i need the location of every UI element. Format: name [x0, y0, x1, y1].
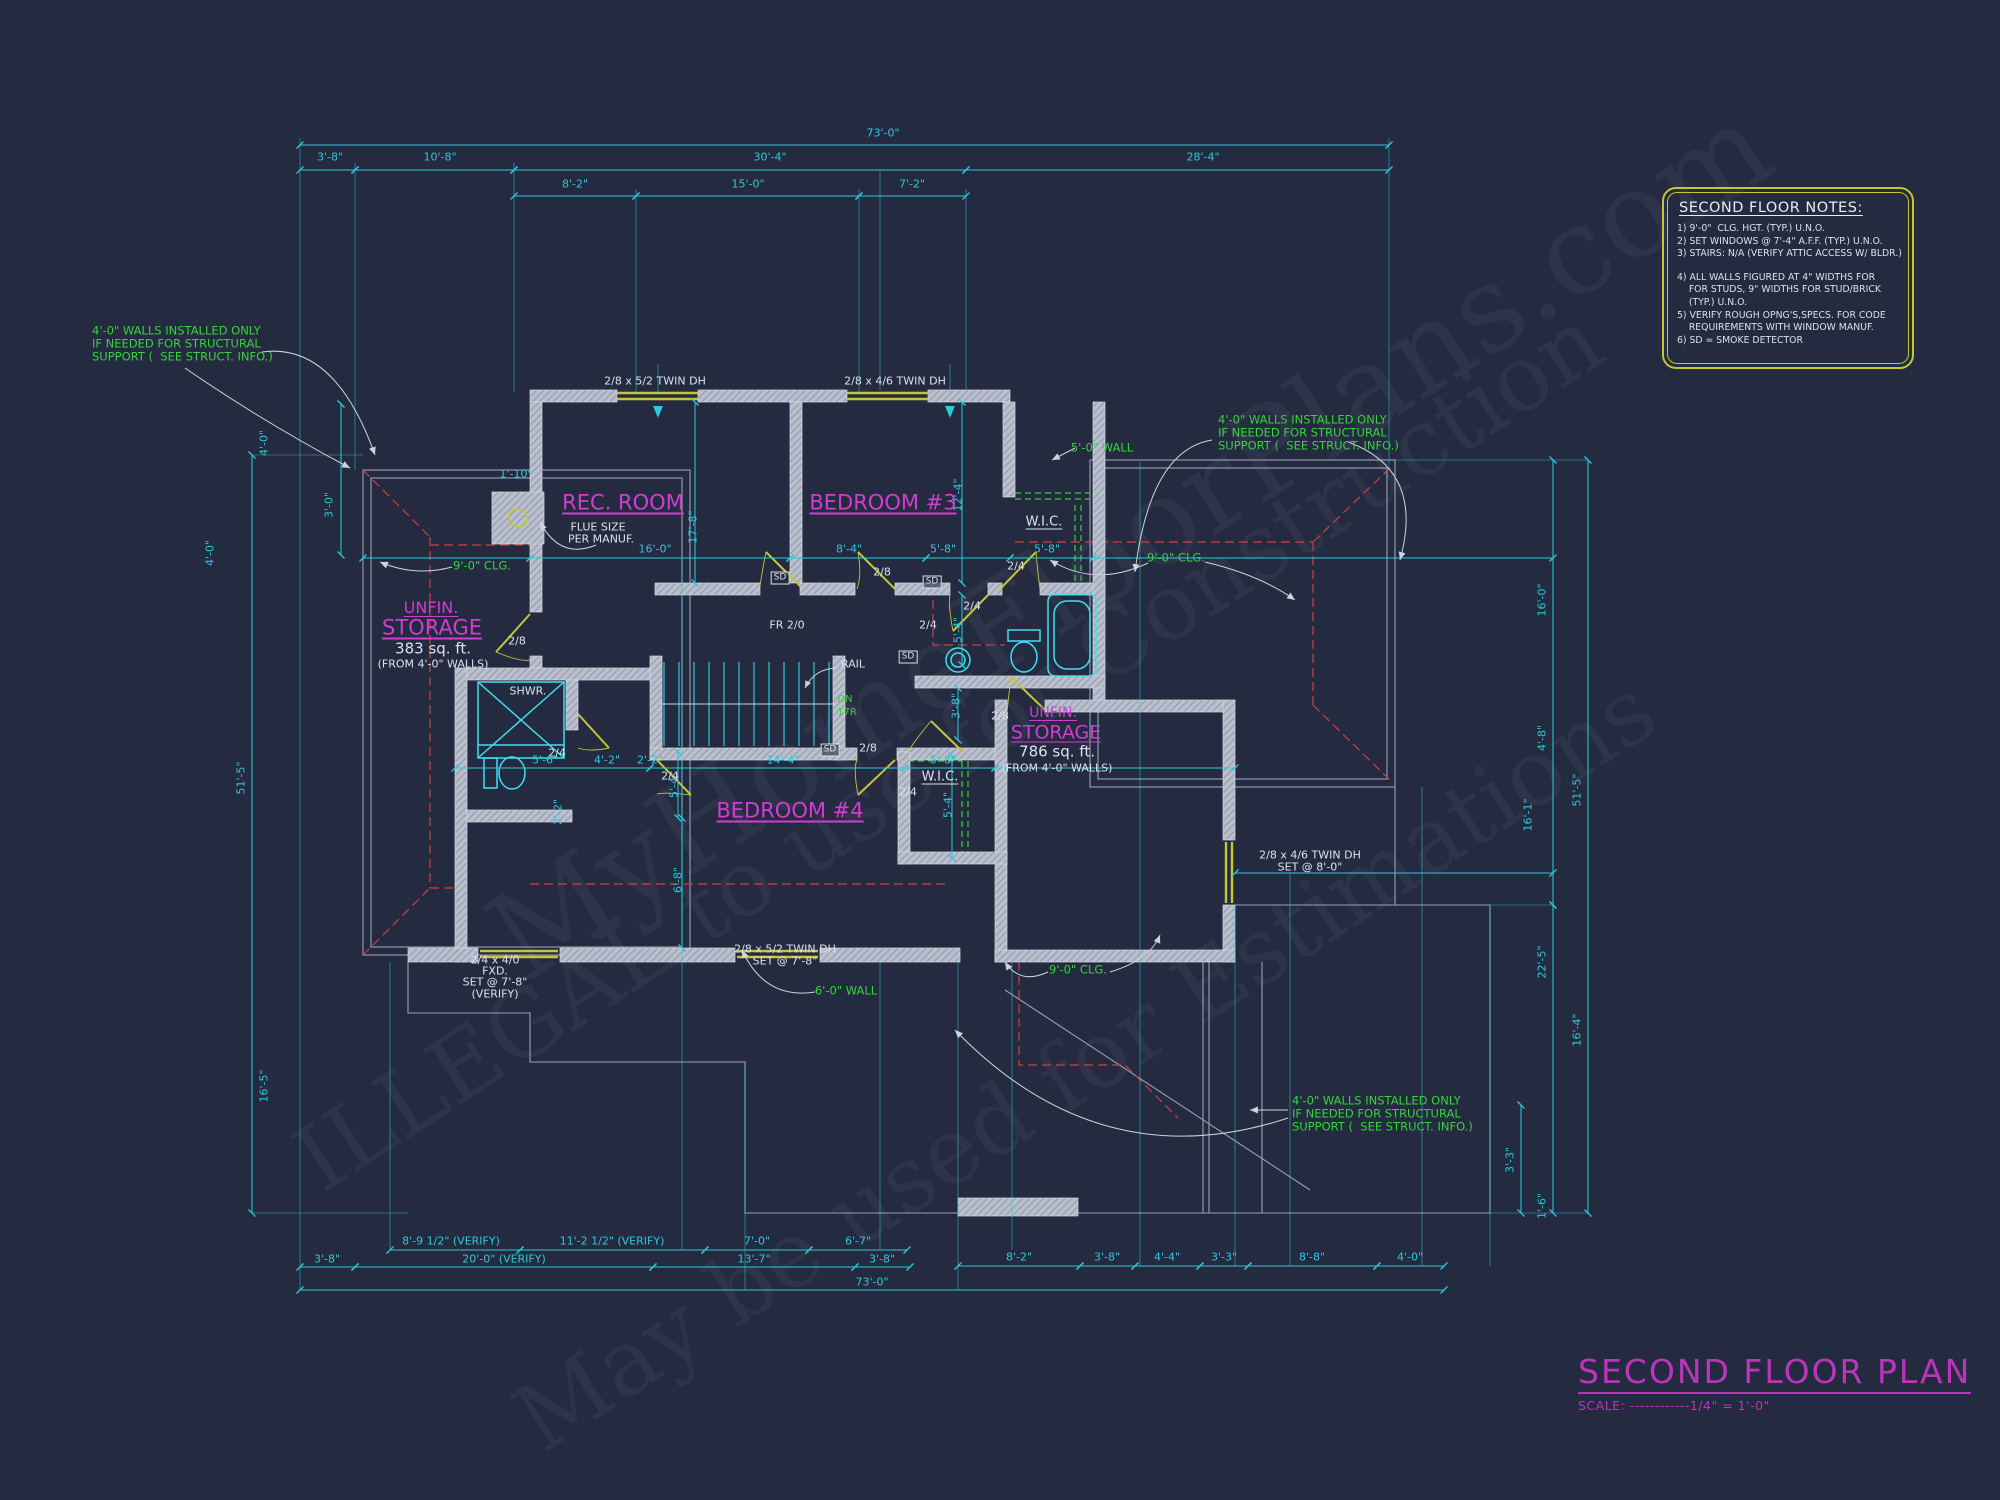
fixture-label-shower: SHWR. — [510, 686, 547, 697]
window-spec: (VERIFY) — [472, 989, 519, 1000]
structural-note: 4'-0" WALLS INSTALLED ONLY — [1292, 1095, 1461, 1107]
dim-label: 30'-4" — [753, 152, 786, 163]
flue-note: FLUE SIZE — [570, 522, 625, 533]
door-size: 2/4 — [919, 620, 937, 631]
dim-label: 4'-2" — [594, 755, 620, 766]
stair-direction: DN — [837, 695, 852, 705]
ceiling-note: 9'-0" CLG. — [1147, 552, 1205, 564]
dim-label: 22'-5" — [1537, 945, 1548, 978]
door-size: 2/4 — [899, 787, 917, 798]
note-line: 4) ALL WALLS FIGURED AT 4" WIDTHS FOR — [1677, 272, 1899, 285]
dim-label: 5'-4" — [943, 792, 954, 818]
dim-label: 16'-4" — [1572, 1013, 1583, 1046]
dim-label: 8'-4" — [836, 544, 862, 555]
dim-label: 7'-0" — [744, 1236, 770, 1247]
note-line: 1) 9'-0" CLG. HGT. (TYP.) U.N.O. — [1677, 223, 1899, 236]
dim-label: 5'-8" — [930, 544, 956, 555]
window-arrows — [653, 406, 955, 418]
window-spec: 2/8 x 5/2 TWIN DH — [734, 944, 836, 955]
flue-note: PER MANUF. — [568, 534, 634, 545]
structural-note: IF NEEDED FOR STRUCTURAL — [92, 338, 261, 350]
room-label-unfin-storage-right: STORAGE — [1011, 724, 1101, 743]
door-size: 2/8 — [508, 636, 526, 647]
note-line: (TYP.) U.N.O. — [1677, 297, 1899, 310]
dim-label: 14'-4" — [766, 755, 799, 766]
note-line: FOR STUDS, 9" WIDTHS FOR STUD/BRICK — [1677, 284, 1899, 297]
ceiling-break-lines — [363, 465, 1393, 1118]
dim-label: 15'-0" — [731, 179, 764, 190]
room-label-unfin-storage-left: STORAGE — [382, 618, 482, 639]
blueprint-canvas: MyHomeFloorPlans.comILLEGAL to use for C… — [0, 0, 2000, 1500]
structural-note: SUPPORT ( SEE STRUCT. INFO.) — [1218, 440, 1399, 452]
dim-label: 51'-5" — [1572, 773, 1583, 806]
door-size: 2/4 — [661, 771, 679, 782]
toilet-icon — [484, 757, 525, 789]
door-size: 2/8 — [991, 711, 1009, 722]
stair-rail-label: RAIL — [841, 659, 865, 670]
window-spec: SET @ 8'-0" — [1278, 862, 1343, 873]
sink-icon — [946, 648, 970, 672]
smoke-detector-marker: SD — [771, 572, 790, 585]
title-block: SECOND FLOOR PLAN SCALE: ------------1/4… — [1578, 1352, 1971, 1413]
room-label-wic-1: W.I.C. — [1026, 516, 1063, 529]
door-size: 2/4 — [963, 601, 981, 612]
dim-label: 7'-2" — [899, 179, 925, 190]
bathtub-icon — [1048, 594, 1096, 676]
door-size: FR 2/0 — [769, 620, 804, 631]
dim-label: 1'-10" — [499, 469, 532, 480]
dim-label: 3'-3" — [1211, 1252, 1237, 1263]
dim-label: 6'-7" — [845, 1236, 871, 1247]
dim-label: 4'-4" — [1154, 1252, 1180, 1263]
notes-box: SECOND FLOOR NOTES: 1) 9'-0" CLG. HGT. (… — [1662, 187, 1914, 369]
dim-label: 13'-7" — [737, 1254, 770, 1265]
area-label: (FROM 4'-0" WALLS) — [1002, 763, 1113, 774]
structural-note: 4'-0" WALLS INSTALLED ONLY — [1218, 414, 1387, 426]
dim-label: 4'-0" — [1397, 1252, 1423, 1263]
dim-label: 16'-0" — [638, 544, 671, 555]
dim-label: 73'-0" — [866, 128, 899, 139]
structural-note: SUPPORT ( SEE STRUCT. INFO.) — [1292, 1121, 1473, 1133]
area-label: 786 sq. ft. — [1019, 745, 1095, 760]
dim-label: 8'-9 1/2" (VERIFY) — [402, 1236, 500, 1247]
area-label: 383 sq. ft. — [395, 642, 471, 657]
window-spec: SET @ 7'-8" — [463, 977, 528, 988]
notes-title: SECOND FLOOR NOTES: — [1679, 200, 1899, 216]
dim-label: 11'-2 1/2" (VERIFY) — [560, 1236, 665, 1247]
dim-label: 2'-2" — [637, 755, 663, 766]
ceiling-note: 9'-0" CLG. — [453, 560, 511, 572]
note-line: 2) SET WINDOWS @ 7'-4" A.F.F. (TYP.) U.N… — [1677, 236, 1899, 249]
dim-label: 5'-8" — [1034, 544, 1060, 555]
dim-label: 8'-2" — [562, 179, 588, 190]
note-line: 6) SD = SMOKE DETECTOR — [1677, 335, 1899, 348]
door-size: 2/8 — [859, 743, 877, 754]
dim-label: 51'-5" — [236, 761, 247, 794]
dim-label: 6'-8" — [673, 867, 684, 893]
dim-label: 3'-0" — [324, 492, 335, 518]
note-line: 5) VERIFY ROUGH OPNG'S,SPECS. FOR CODE — [1677, 310, 1899, 323]
note-line: REQUIREMENTS WITH WINDOW MANUF. — [1677, 322, 1899, 335]
dim-label: 16'-1" — [1523, 798, 1534, 831]
notes-box-inner: SECOND FLOOR NOTES: 1) 9'-0" CLG. HGT. (… — [1667, 192, 1909, 364]
dim-label: 8'-8" — [1299, 1252, 1325, 1263]
window-spec: 2/8 x 4/6 TWIN DH — [1259, 850, 1361, 861]
dim-label: 4'-0" — [205, 540, 216, 566]
dim-label: 73'-0" — [855, 1277, 888, 1288]
window-spec: 2/8 x 5/2 TWIN DH — [604, 376, 706, 387]
door-size: 2/8 — [873, 567, 891, 578]
dim-label: 3'-8" — [951, 693, 962, 719]
dim-label: 20'-0" (VERIFY) — [462, 1254, 546, 1265]
ceiling-note: 9'-0" CLG. — [1049, 964, 1107, 976]
dim-label: 10'-8" — [423, 152, 456, 163]
structural-note: SUPPORT ( SEE STRUCT. INFO.) — [92, 351, 273, 363]
window-spec: SET @ 7'-8" — [753, 956, 818, 967]
dim-label: 16'-0" — [1537, 583, 1548, 616]
dim-label: 4'-8" — [1537, 725, 1548, 751]
area-label: (FROM 4'-0" WALLS) — [378, 659, 489, 670]
dim-label: 5'-8" — [930, 755, 956, 766]
plan-title: SECOND FLOOR PLAN — [1578, 1352, 1971, 1394]
dim-label: 5'-4" — [953, 617, 964, 643]
structural-note: 4'-0" WALLS INSTALLED ONLY — [92, 325, 261, 337]
dim-label: 1'-6" — [1537, 1193, 1548, 1219]
dim-label: 8'-2" — [1006, 1252, 1032, 1263]
dim-label: 17'-8" — [688, 510, 699, 543]
window-spec: 2/8 x 4/6 TWIN DH — [844, 376, 946, 387]
dim-label: 28'-4" — [1186, 152, 1219, 163]
dim-label: 3'-8" — [314, 1254, 340, 1265]
dim-label: 3'-8" — [317, 152, 343, 163]
room-label-wic-2: W.I.C. — [922, 771, 959, 784]
dim-label: 2'-2" — [553, 799, 564, 825]
dim-label: 3'-8" — [1094, 1252, 1120, 1263]
notes-lines: 1) 9'-0" CLG. HGT. (TYP.) U.N.O.2) SET W… — [1677, 223, 1899, 347]
door-size: 2/4 — [1007, 561, 1025, 572]
room-label-bedroom-4: BEDROOM #4 — [716, 801, 863, 822]
room-label-unfin-storage-left: UNFIN. — [404, 600, 459, 616]
plan-scale: SCALE: ------------1/4" = 1'-0" — [1578, 1398, 1971, 1413]
staircase — [660, 662, 838, 746]
room-label-unfin-storage-right: UNFIN. — [1029, 706, 1077, 720]
room-label-rec-room: REC. ROOM — [562, 493, 684, 514]
door-size: 2/4 — [548, 748, 566, 759]
room-label-bedroom-3: BEDROOM #3 — [809, 493, 956, 514]
dim-label: 3'-3" — [1505, 1147, 1516, 1173]
smoke-detector-marker: SD — [923, 576, 942, 589]
wall-height-note: 6'-0" WALL — [815, 985, 877, 997]
note-line: 3) STAIRS: N/A (VERIFY ATTIC ACCESS W/ B… — [1677, 248, 1899, 261]
dim-label: 3'-8" — [869, 1254, 895, 1265]
structural-note: IF NEEDED FOR STRUCTURAL — [1292, 1108, 1461, 1120]
dim-label: 4'-0" — [259, 430, 270, 456]
smoke-detector-marker: SD — [899, 651, 918, 664]
toilet-icon — [1008, 630, 1040, 672]
dim-label: 16'-5" — [259, 1069, 270, 1102]
wall-height-note: 5'-0" WALL — [1071, 442, 1133, 454]
stair-risers: 17R — [837, 708, 857, 718]
smoke-detector-marker: SD — [821, 744, 840, 757]
structural-note: IF NEEDED FOR STRUCTURAL — [1218, 427, 1387, 439]
